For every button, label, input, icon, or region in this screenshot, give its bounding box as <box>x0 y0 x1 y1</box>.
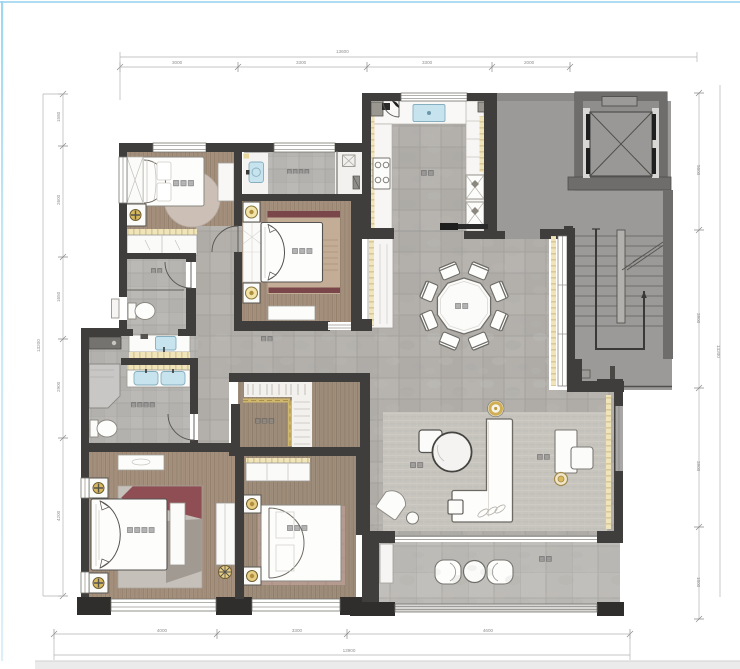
svg-text:3000: 3000 <box>172 60 183 65</box>
svg-text:13900: 13900 <box>343 648 356 653</box>
svg-text:2900: 2900 <box>56 381 61 392</box>
svg-text:1650: 1650 <box>56 291 61 302</box>
svg-text:3900: 3900 <box>696 313 701 324</box>
svg-text:2000: 2000 <box>524 60 535 65</box>
svg-text:4600: 4600 <box>483 628 494 633</box>
svg-text:13200: 13200 <box>36 339 41 352</box>
svg-text:1800: 1800 <box>696 577 701 588</box>
svg-text:3300: 3300 <box>292 628 303 633</box>
svg-text:3300: 3300 <box>422 60 433 65</box>
svg-text:3900: 3900 <box>696 461 701 472</box>
svg-text:4200: 4200 <box>56 510 61 521</box>
svg-text:4000: 4000 <box>157 628 168 633</box>
svg-text:13200: 13200 <box>716 345 721 358</box>
svg-text:2600: 2600 <box>56 194 61 205</box>
svg-text:3300: 3300 <box>296 60 307 65</box>
svg-text:1580: 1580 <box>56 111 61 122</box>
svg-text:13600: 13600 <box>336 49 349 54</box>
svg-text:5600: 5600 <box>696 165 701 176</box>
